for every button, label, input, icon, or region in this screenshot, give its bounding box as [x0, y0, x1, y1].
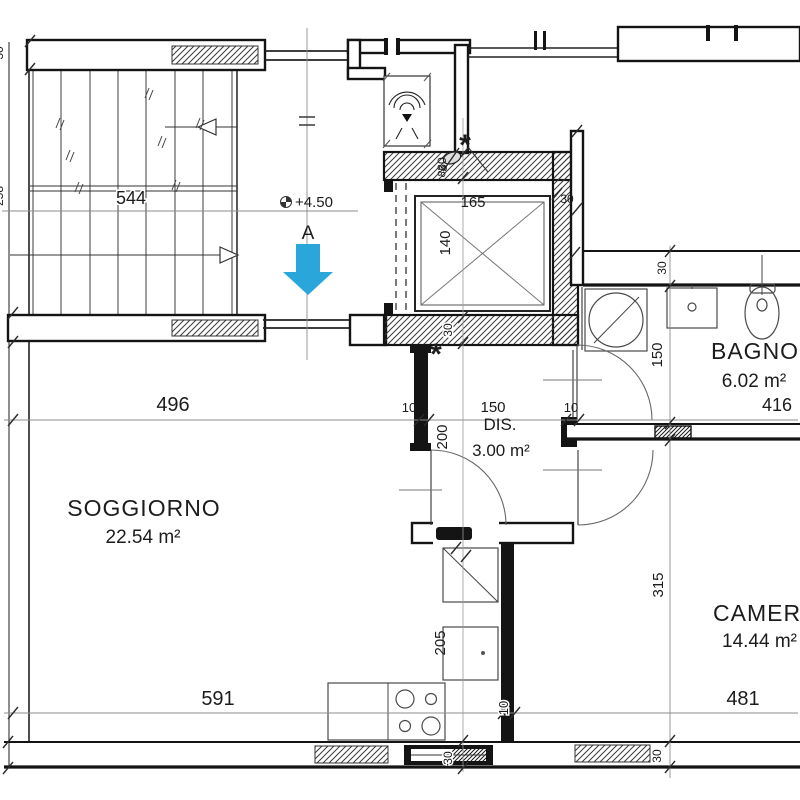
- dim-lift-wall-right: 30: [560, 192, 574, 206]
- dim-wall10-left: 10: [402, 400, 416, 415]
- asterisk-mark-dis: *: [430, 338, 442, 371]
- dim-stair-flight: 544: [116, 188, 146, 208]
- dim-dis-depth: 200: [434, 424, 451, 449]
- dim-lift-depth: 140: [437, 230, 454, 255]
- dim-lift-wall-top: 30: [435, 157, 449, 171]
- dim-wall10-right: 10: [564, 400, 578, 415]
- dim-bagno-width: 416: [762, 395, 792, 415]
- asterisk-mark-top: *: [459, 129, 471, 162]
- dim-bottom-wall-window: 30: [441, 751, 455, 765]
- room-label-dis: DIS.: [483, 415, 516, 434]
- dim-wall10-camera: 10: [496, 701, 511, 715]
- section-letter: A: [302, 223, 315, 244]
- dim-edge-top-clipped: 30: [0, 46, 6, 60]
- dim-camera-bottom: 481: [726, 688, 759, 710]
- dim-kitchen-depth: 205: [432, 630, 449, 655]
- room-area-soggiorno: 22.54 m²: [106, 527, 181, 548]
- room-area-bagno: 6.02 m²: [722, 371, 786, 392]
- dim-bottom-wall-right: 30: [650, 749, 664, 763]
- dim-dis-width: 150: [480, 399, 505, 416]
- dim-camera-depth: 315: [650, 572, 667, 597]
- section-arrow-shaft: [296, 244, 320, 273]
- floor-plan: 85 * * SOGGIORNO 22.54 m² DIS. 3.00 m² B…: [0, 0, 800, 800]
- room-area-camera: 14.44 m²: [722, 631, 797, 652]
- room-label-bagno: BAGNO: [711, 338, 799, 364]
- dim-soggiorno-bottom: 591: [201, 688, 234, 710]
- dim-soggiorno-width: 496: [156, 394, 189, 416]
- room-label-camera: CAMERA: [713, 600, 800, 626]
- dim-edge-mid-clipped: 258: [0, 186, 6, 206]
- dim-bagno-wall-top: 30: [655, 261, 669, 275]
- level-value: +4.50: [295, 194, 333, 211]
- room-area-dis: 3.00 m²: [472, 441, 530, 460]
- room-label-soggiorno: SOGGIORNO: [67, 495, 220, 521]
- dim-lift-width: 165: [460, 194, 485, 211]
- level-marker: [281, 197, 292, 208]
- sliding-door-leaf: [436, 527, 472, 540]
- dim-bagno-depth: 150: [649, 342, 666, 367]
- dim-lift-wall-bottom: 30: [441, 323, 455, 337]
